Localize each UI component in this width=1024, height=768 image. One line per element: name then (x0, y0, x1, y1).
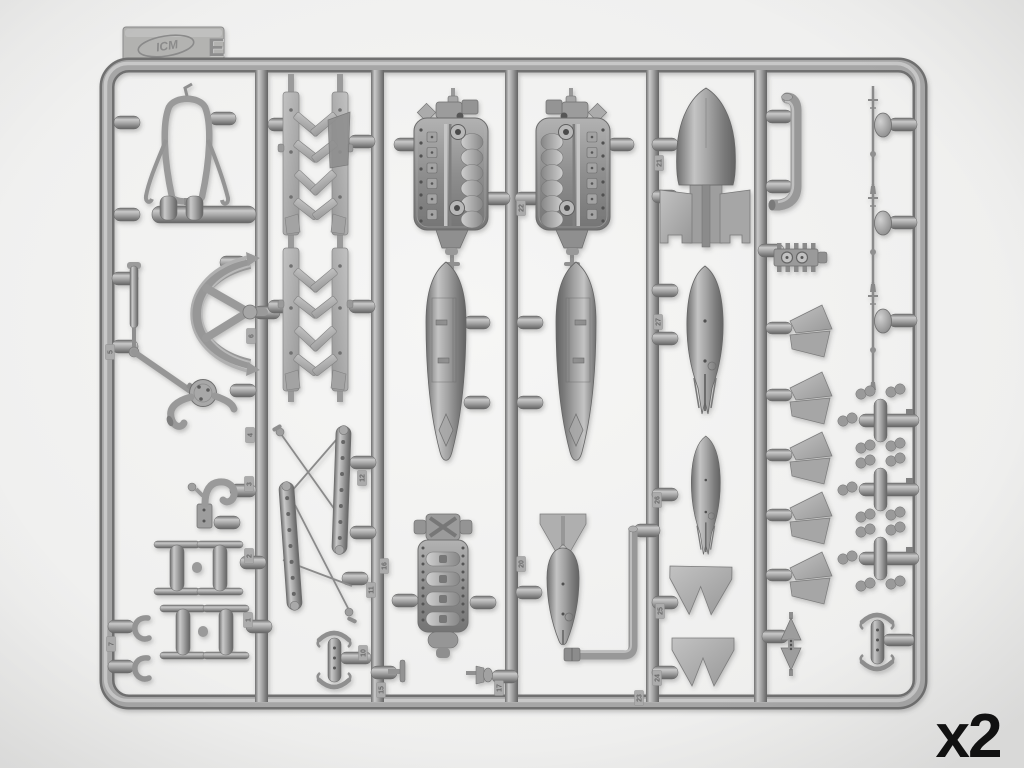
sprue-scene: ICM E E (0, 0, 1024, 768)
vignette-overlay (0, 0, 1024, 768)
quantity-label: x2 (936, 702, 1001, 768)
sprue-photo: ICM E E (0, 0, 1024, 768)
